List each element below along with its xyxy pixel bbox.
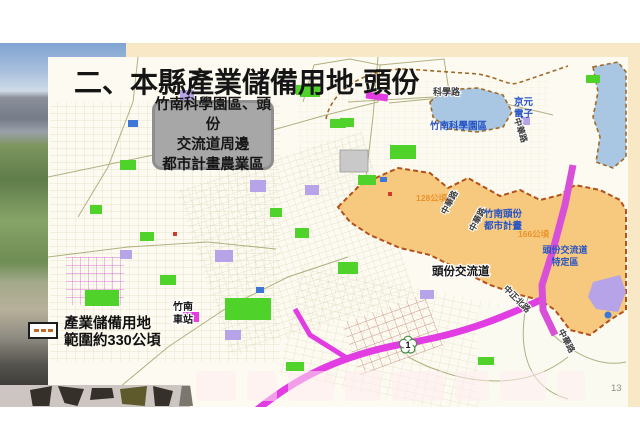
subtitle-line-1: 竹南科學園區、頭份: [155, 95, 271, 135]
sda-label-line1: 頭份交流道: [542, 244, 587, 255]
legend-label-line2: 範圍約330公頃: [64, 333, 161, 350]
sda-label-line2: 特定區: [551, 256, 578, 267]
urban-plan-map[interactable]: 1 科學路 京元 電子 竹南科學園區 中華路 中華路 中華路 128公頃 166…: [48, 57, 628, 407]
bottom-margin: [0, 407, 640, 441]
kyec-label-line1: 京元: [514, 96, 534, 108]
zhunan-science-park-label: 竹南科學園區: [429, 120, 488, 132]
highway-shield-number: 1: [405, 340, 410, 350]
dashed-boundary-icon: [28, 322, 58, 339]
clipped-watermark-glyphs-faint: [196, 371, 585, 401]
toufen-interchange-label: 頭份交流道: [432, 264, 490, 278]
subtitle-callout: 竹南科學園區、頭份 交流道周邊 都市計畫農業區: [152, 100, 274, 170]
map-legend: 產業儲備用地 範圍約330公頃: [28, 316, 161, 349]
page-title: 二、本縣產業儲備用地-頭份: [74, 61, 494, 101]
plan-label-line1: 竹南頭份: [483, 208, 523, 220]
clipped-watermark-glyphs-dark: [30, 386, 193, 406]
legend-label-line1: 產業儲備用地: [64, 316, 161, 333]
gray-facility-block: [340, 150, 368, 172]
area-west-label: 128公頃: [416, 193, 448, 203]
slide-card: 1 科學路 京元 電子 竹南科學園區 中華路 中華路 中華路 128公頃 166…: [48, 57, 628, 407]
subtitle-line-2: 交流道周邊: [177, 135, 250, 155]
page-number: 13: [611, 383, 622, 394]
subtitle-line-3: 都市計畫農業區: [162, 155, 264, 175]
zhunan-station-label-line2: 車站: [173, 313, 193, 326]
legend-label: 產業儲備用地 範圍約330公頃: [64, 316, 161, 349]
area-east-label: 166公頃: [518, 229, 550, 239]
zhunan-station-label-line1: 竹南: [172, 300, 193, 313]
plan-label-line2: 都市計畫: [483, 220, 523, 232]
